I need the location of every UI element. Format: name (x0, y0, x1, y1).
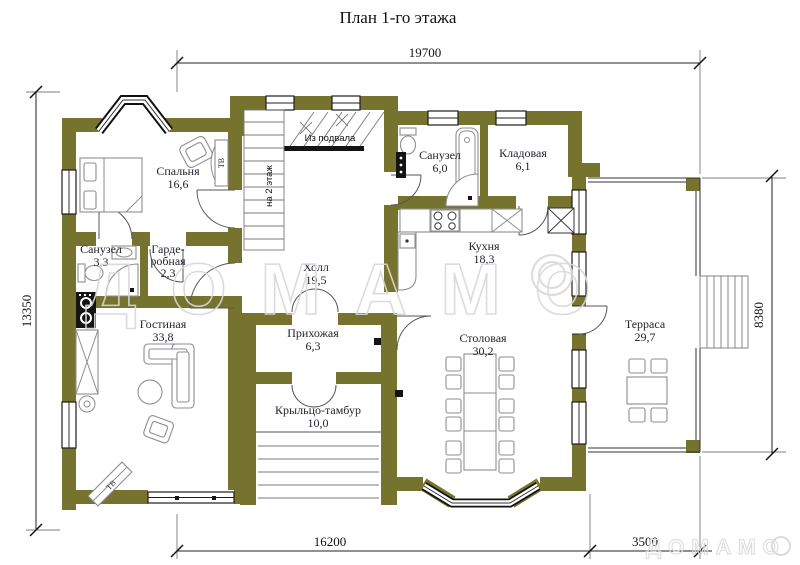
tv-label-bedroom: ТВ (217, 158, 226, 168)
cabinet-living (76, 330, 98, 412)
shower-bathroom (446, 174, 478, 206)
label-terrace: Терраса (625, 317, 666, 331)
label-dining-area: 30,2 (473, 344, 494, 358)
toilet-bathroom (400, 128, 416, 154)
dim-right: 8380 (751, 302, 766, 328)
label-bedroom: Спальня (156, 164, 200, 178)
bay-window-bedroom (99, 100, 169, 131)
tv-unit-bedroom: ТВ (211, 140, 228, 186)
page-title: План 1-го этажа (340, 8, 457, 27)
coffee-table (138, 380, 162, 404)
porch-steps (258, 446, 379, 498)
floor-plan-page: ТВ ТВ (0, 0, 800, 565)
bed (80, 158, 142, 212)
label-storage: Кладовая (499, 146, 547, 160)
label-porch-area: 10,0 (308, 416, 329, 430)
label-hallway-area: 6,3 (306, 339, 321, 353)
armchair-living (143, 414, 175, 444)
vent-shaft-kitchen (548, 208, 574, 233)
label-living-area: 33,8 (153, 330, 174, 344)
dining-table (446, 354, 514, 473)
terrace-stairs (700, 276, 748, 348)
watermark-main: ДОМАМО (85, 250, 624, 330)
label-terrace-area: 29,7 (635, 330, 656, 344)
dim-top: 19700 (409, 45, 442, 60)
label-porch: Крыльцо-тамбур (275, 403, 361, 417)
label-bedroom-area: 16,6 (168, 177, 189, 191)
stairs-basement (284, 112, 384, 151)
vent-shaft-bathroom (396, 152, 406, 178)
terrace-table (627, 359, 667, 422)
switch-box-hallway (374, 338, 381, 345)
floor-plan-drawing: ТВ ТВ (0, 0, 800, 565)
label-dining: Столовая (459, 331, 507, 345)
label-storage-area: 6,1 (516, 159, 531, 173)
label-to-second-floor: на 2 этаж (264, 165, 275, 207)
dim-left: 13350 (19, 295, 34, 328)
label-bathroom-area: 6,0 (433, 161, 448, 175)
watermark-corner: ДОМАМО (646, 536, 786, 559)
dim-bottom-main: 16200 (314, 534, 347, 549)
switch-box-porch (395, 390, 403, 397)
label-from-basement: Из подвала (305, 133, 356, 144)
label-bathroom: Санузел (419, 148, 461, 162)
